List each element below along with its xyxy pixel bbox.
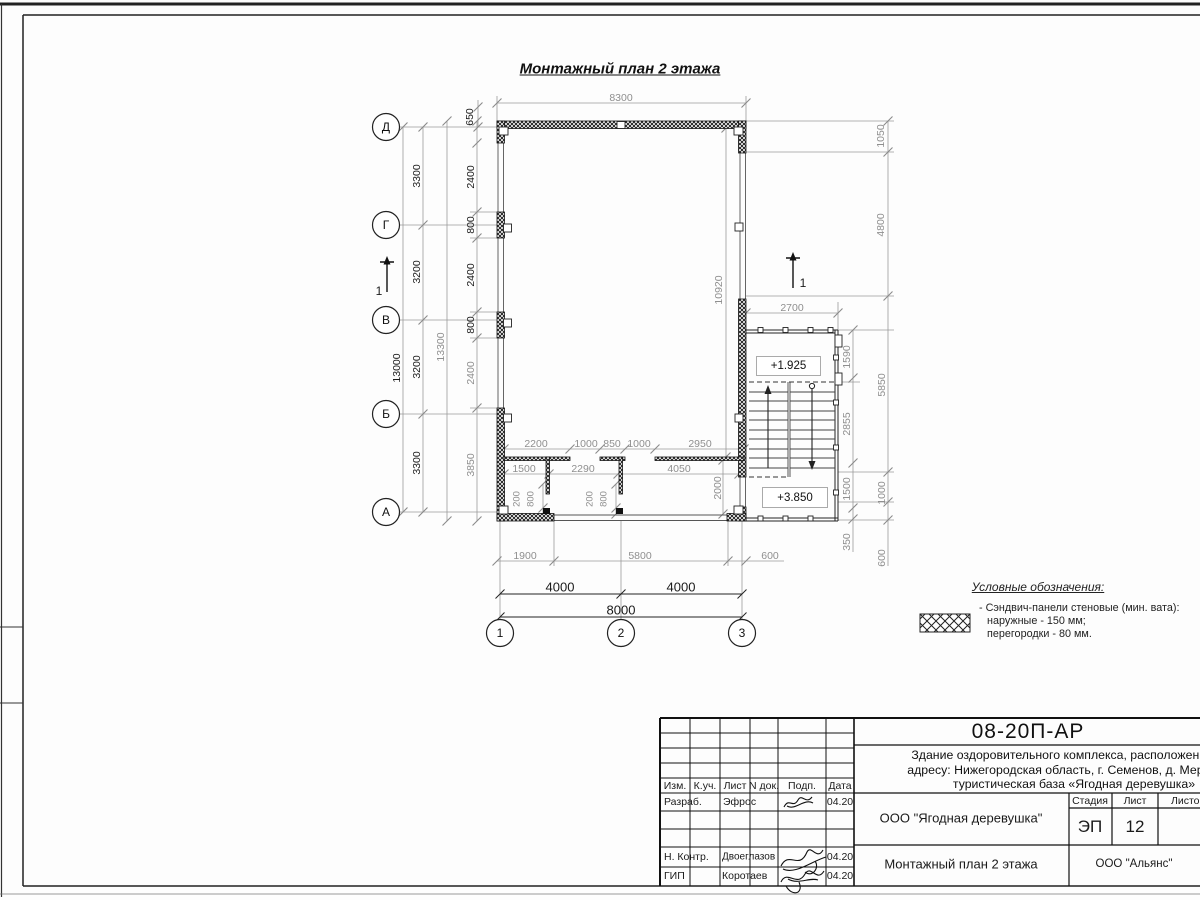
- client-name: ООО "Ягодная деревушка": [880, 811, 1043, 826]
- legend-item-line2: наружные - 150 мм;: [987, 615, 1086, 627]
- dim-label: 4050: [667, 463, 691, 475]
- columns: [499, 122, 842, 522]
- col-izm: Изм.: [664, 780, 687, 792]
- row-date-nkontr: 04.20: [827, 851, 853, 863]
- dim-label: 850: [603, 438, 621, 450]
- dim-label: 4000: [546, 579, 575, 594]
- row-date-gip: 04.20: [827, 870, 853, 882]
- dim-label: 200: [585, 491, 596, 507]
- dim-label: 13000: [391, 353, 403, 382]
- dimension-labels: 8300650330032003200330013000133002400800…: [376, 92, 888, 618]
- dim-label: 2700: [780, 302, 804, 314]
- dim-label: 600: [876, 549, 888, 567]
- dim-label: 2855: [841, 412, 853, 436]
- dim-label: 1500: [512, 463, 536, 475]
- document-code: 08-20П-АР: [972, 720, 1085, 744]
- axis-label: 3: [739, 626, 746, 640]
- dim-label: 4000: [667, 579, 696, 594]
- axis-label: 2: [618, 626, 625, 640]
- drawing-sheet: { "plan": { "title": "Монтажный план 2 э…: [0, 0, 1200, 900]
- dim-label: 1000: [574, 438, 598, 450]
- stage-value: ЭП: [1078, 817, 1102, 837]
- dim-label: 600: [761, 550, 779, 562]
- dim-label: 2200: [524, 438, 548, 450]
- axis-label: Г: [383, 218, 390, 232]
- row-name-nkontr: Двоеглазов: [722, 852, 775, 863]
- axis-label: А: [382, 505, 390, 519]
- col-kuch: К.уч.: [694, 780, 717, 792]
- dim-label: 13300: [435, 332, 447, 361]
- legend-title: Условные обозначения:: [972, 580, 1104, 594]
- legend-item-line1: - Сэндвич-панели стеновые (мин. вата):: [979, 602, 1179, 614]
- dim-label: 8000: [607, 602, 636, 617]
- project-description: Здание оздоровительного комплекса, распо…: [856, 748, 1200, 792]
- dim-label: 650: [464, 108, 476, 126]
- dim-label: 3850: [465, 453, 477, 477]
- dim-label: 2950: [688, 438, 712, 450]
- elevation-mark-lower: +3.850: [762, 487, 828, 508]
- row-role-nkontr: Н. Контр.: [664, 851, 709, 863]
- col-ndok: N док.: [749, 780, 779, 792]
- row-name-razrab: Эфрос: [723, 796, 756, 808]
- dim-label: 1590: [841, 345, 853, 369]
- dim-label: 8300: [609, 92, 633, 104]
- axis-label: В: [382, 313, 390, 327]
- dim-label: 4800: [875, 213, 887, 237]
- sheets-label: Листов: [1171, 795, 1200, 807]
- sheet-title: Монтажный план 2 этажа: [884, 857, 1037, 872]
- col-data: Дата: [828, 780, 851, 792]
- dim-label: 2290: [571, 463, 595, 475]
- dim-label: 1: [376, 284, 383, 298]
- dim-label: 2400: [465, 165, 477, 189]
- section-mark-right: [786, 252, 800, 288]
- dim-label: 10920: [713, 275, 725, 304]
- row-role-gip: ГИП: [664, 870, 685, 882]
- axis-label: Б: [382, 407, 390, 421]
- dim-label: 2000: [712, 476, 724, 500]
- dim-label: 2400: [465, 361, 477, 385]
- page-title: Монтажный план 2 этажа: [520, 61, 721, 78]
- dim-label: 200: [512, 491, 523, 507]
- dim-label: 1050: [875, 124, 887, 148]
- dim-label: 800: [526, 491, 537, 507]
- elevation-mark-upper: +1.925: [756, 356, 821, 376]
- row-date-razrab: 04.20: [827, 796, 853, 808]
- dim-label: 3300: [411, 451, 423, 475]
- dim-label: 3300: [411, 164, 423, 188]
- sheet-label: Лист: [1124, 795, 1147, 807]
- stair-flights: [749, 382, 835, 477]
- dim-label: 350: [841, 533, 853, 551]
- dim-label: 3200: [411, 355, 423, 379]
- dim-label: 2400: [465, 263, 477, 287]
- contractor-name: ООО "Альянс": [1096, 858, 1173, 870]
- row-name-gip: Коротаев: [722, 870, 767, 882]
- dim-label: 5850: [876, 373, 888, 397]
- dim-label: 1000: [876, 481, 888, 505]
- col-podp: Подп.: [788, 780, 816, 792]
- dim-label: 5800: [628, 550, 652, 562]
- axis-bubbles: ДГВБА123: [373, 114, 756, 647]
- door-jambs: [543, 508, 623, 514]
- legend-item-line3: перегородки - 80 мм.: [987, 628, 1092, 640]
- col-list: Лист: [724, 780, 747, 792]
- dim-label: 1900: [513, 550, 537, 562]
- dim-label: 1500: [841, 477, 853, 501]
- axis-label: 1: [497, 626, 504, 640]
- legend-swatch: [920, 614, 970, 632]
- axis-label: Д: [382, 120, 390, 134]
- walls: [497, 121, 746, 521]
- dim-label: 1000: [627, 438, 651, 450]
- row-role-razrab: Разраб.: [664, 796, 702, 808]
- dim-label: 1: [800, 276, 807, 290]
- dim-label: 800: [465, 316, 477, 334]
- stage-label: Стадия: [1072, 795, 1108, 807]
- dim-label: 3200: [411, 260, 423, 284]
- dim-label: 800: [465, 216, 477, 234]
- dim-label: 800: [599, 491, 610, 507]
- sheet-number: 12: [1126, 817, 1145, 837]
